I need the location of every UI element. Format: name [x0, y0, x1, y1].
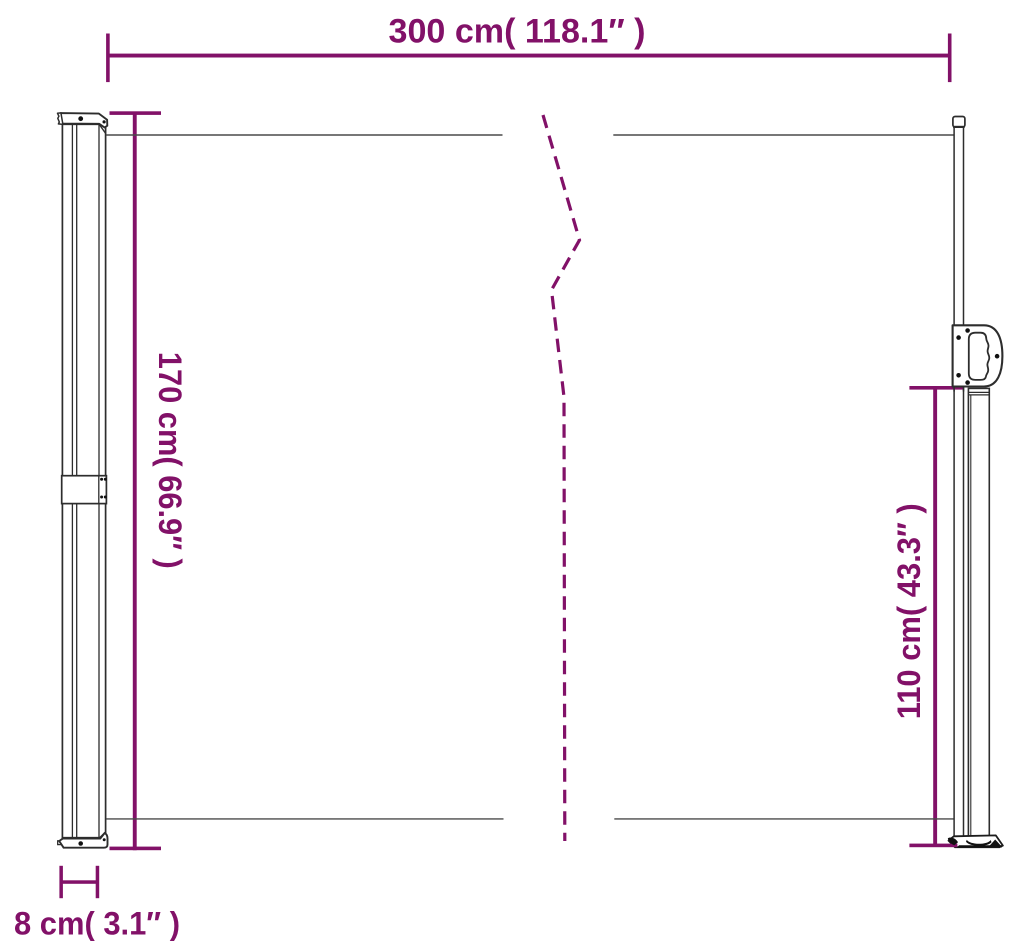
svg-text:8 cm( 3.1″ ): 8 cm( 3.1″ ) [14, 906, 180, 942]
svg-text:170 cm( 66.9″ ): 170 cm( 66.9″ ) [152, 352, 188, 569]
svg-text:110 cm( 43.3″ ): 110 cm( 43.3″ ) [891, 503, 927, 719]
svg-text:300 cm( 118.1″ ): 300 cm( 118.1″ ) [389, 13, 646, 51]
